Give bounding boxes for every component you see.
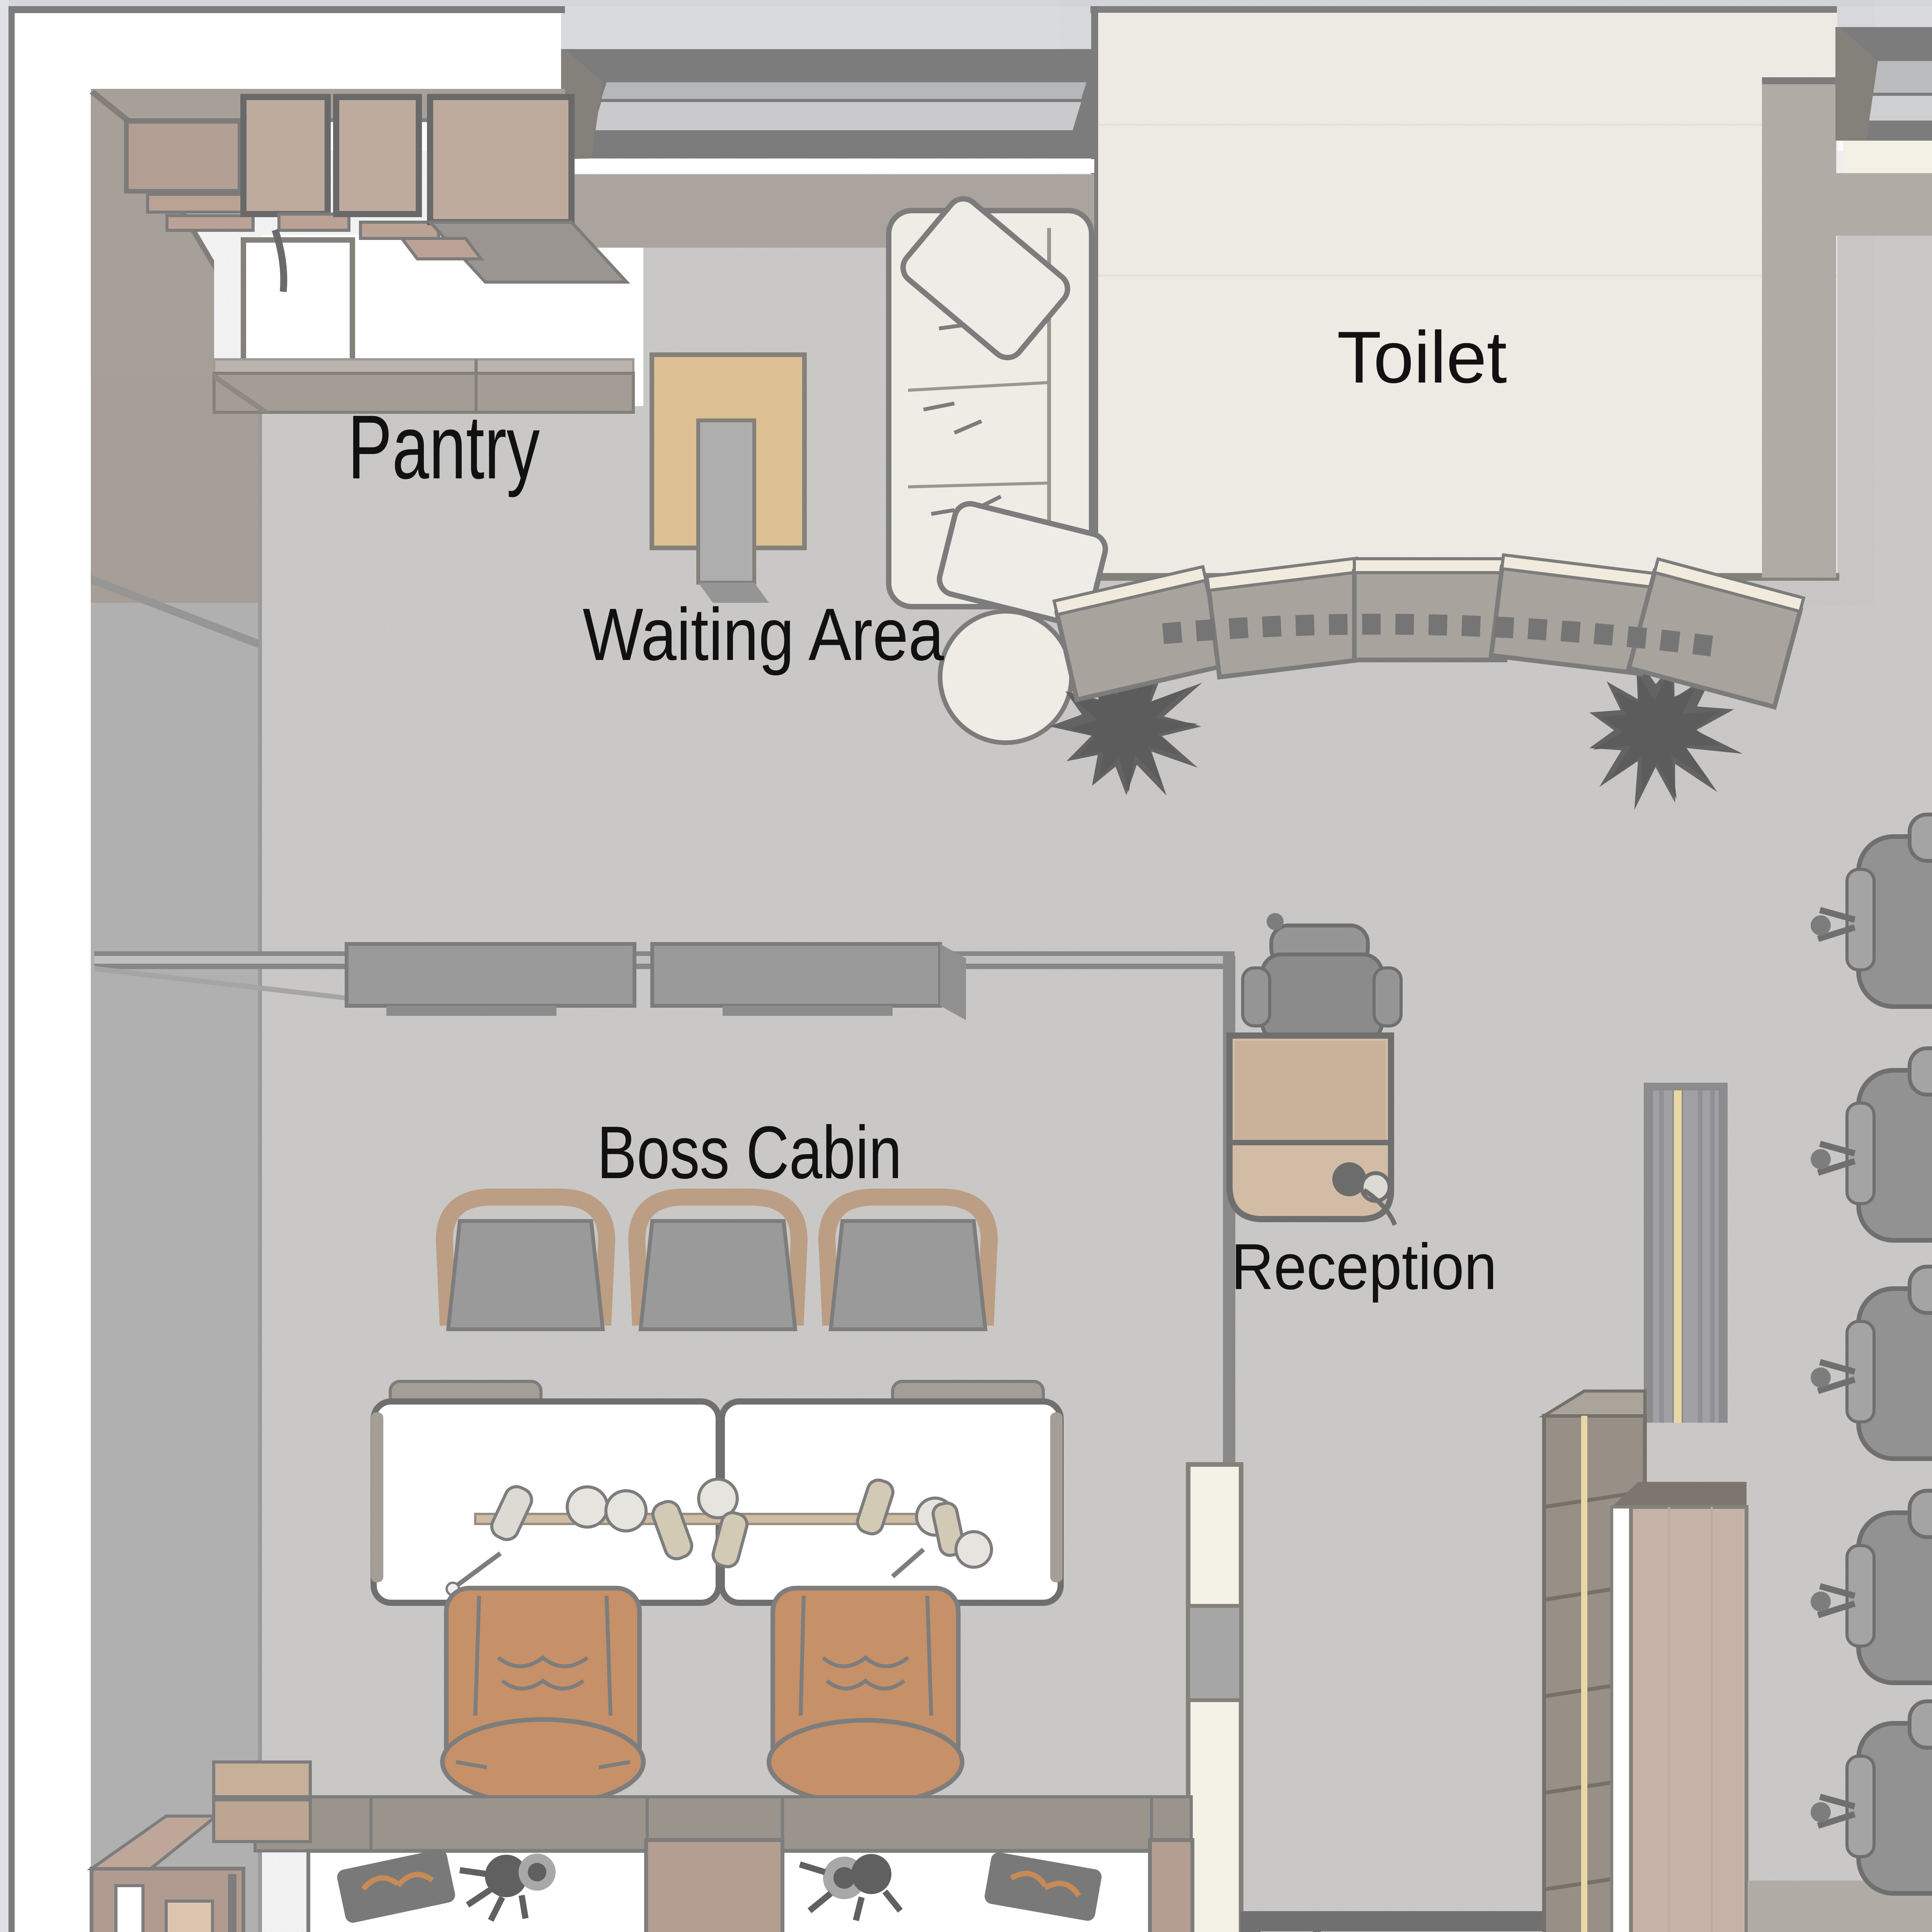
svg-text:Toilet: Toilet (1337, 316, 1507, 398)
svg-text:Waiting Area: Waiting Area (583, 593, 944, 676)
svg-text:Boss Cabin: Boss Cabin (597, 1111, 902, 1194)
svg-text:Pantry: Pantry (348, 396, 540, 498)
svg-text:Reception: Reception (1231, 1230, 1497, 1303)
